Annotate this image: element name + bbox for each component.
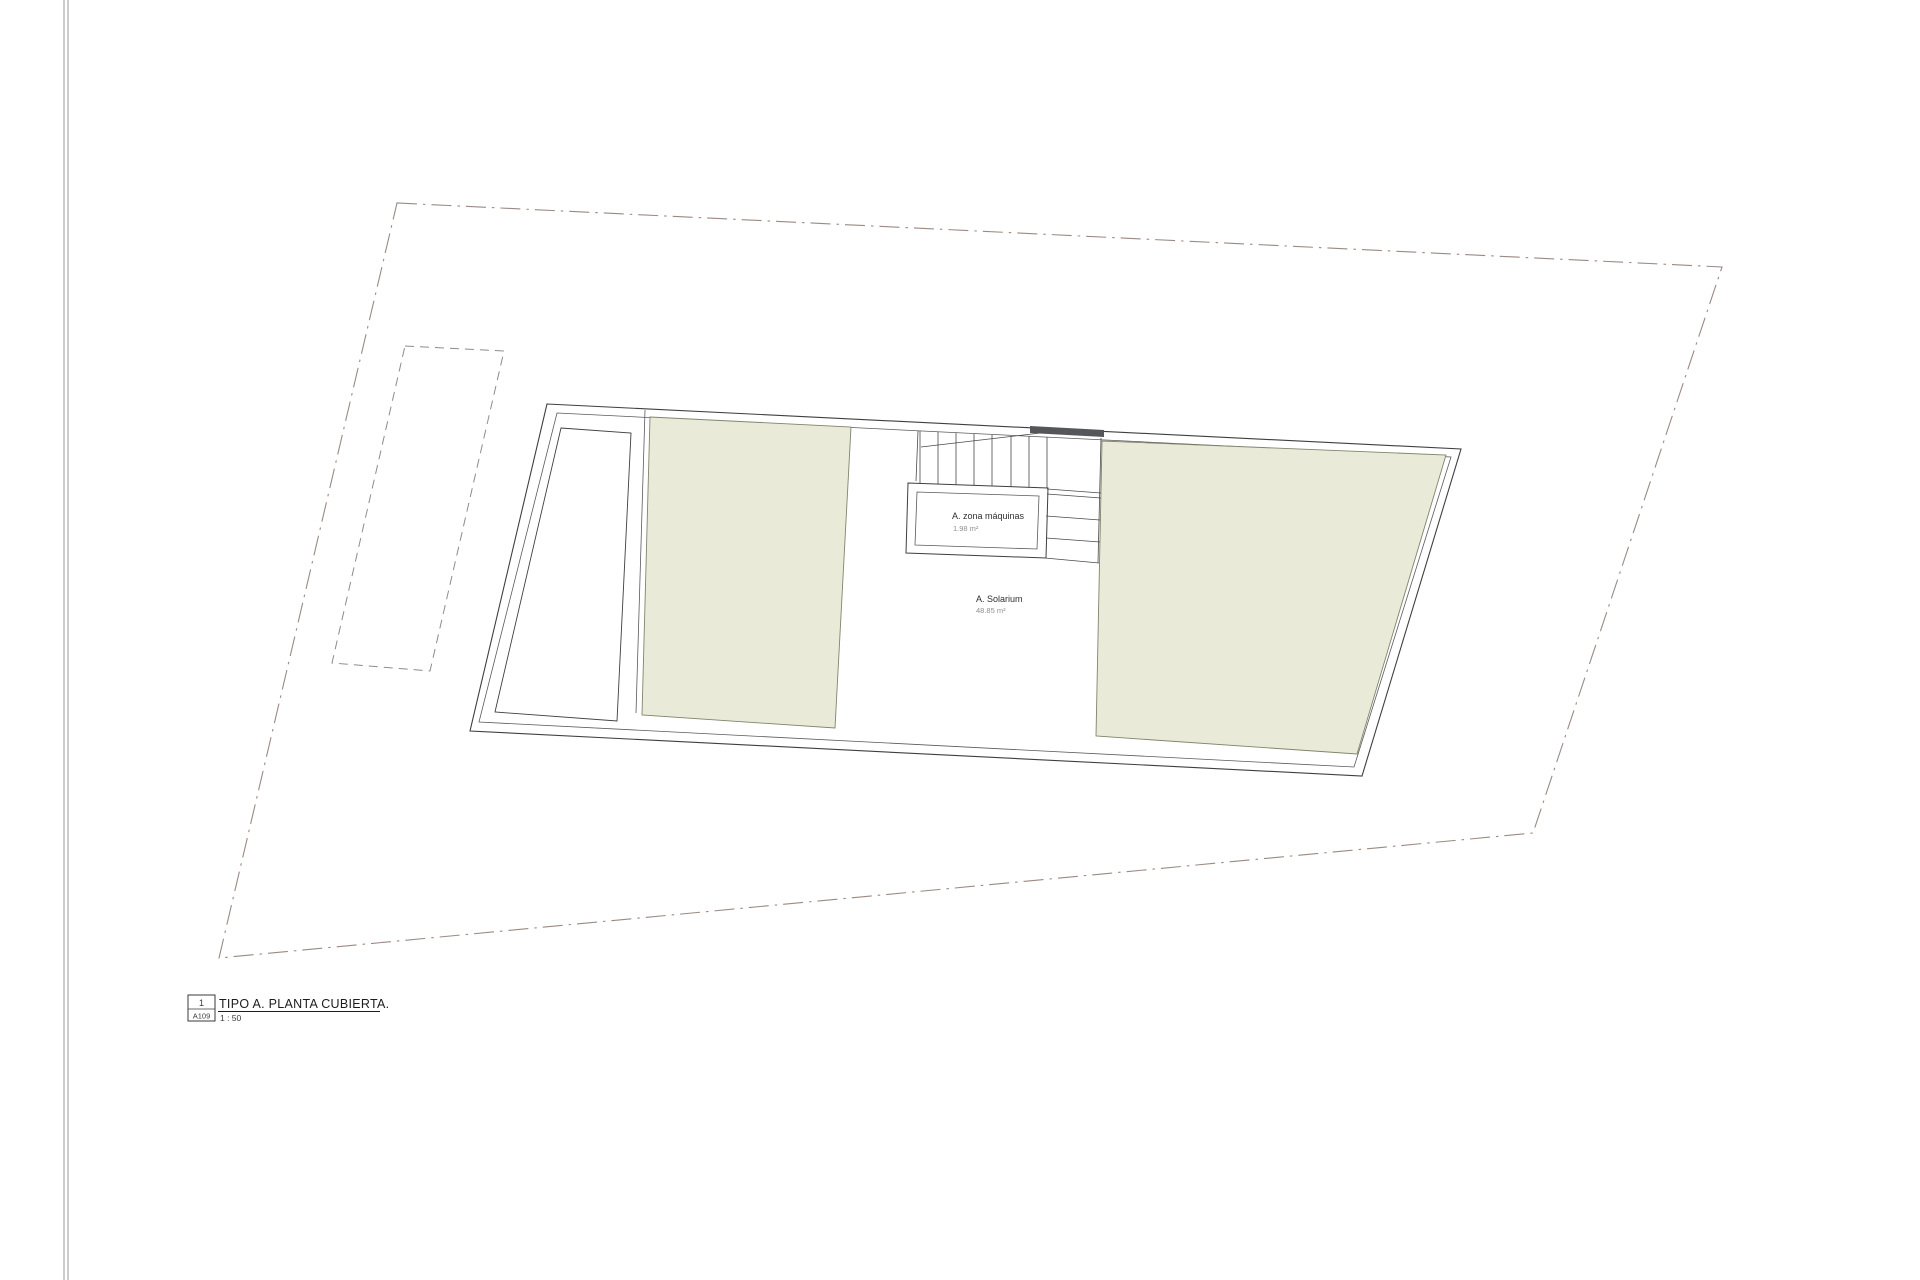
view-scale: 1 : 50 <box>220 1013 242 1023</box>
roof-terrace-east <box>1096 441 1446 754</box>
machine-room-area: 1.98 m² <box>953 524 979 533</box>
parking-dashed-outline <box>332 346 504 671</box>
drawing-sheet: A. zona máquinas 1.98 m² A. Solarium 48.… <box>0 0 1920 1280</box>
solarium-area: 48.85 m² <box>976 606 1006 615</box>
detail-number: 1 <box>199 998 204 1008</box>
view-title: TIPO A. PLANTA CUBIERTA. <box>219 997 389 1011</box>
machine-room-label: A. zona máquinas <box>952 511 1025 521</box>
sheet-number: A109 <box>193 1012 211 1021</box>
floor-plan-canvas: A. zona máquinas 1.98 m² A. Solarium 48.… <box>0 0 1920 1280</box>
title-block: 1 A109 TIPO A. PLANTA CUBIERTA. 1 : 50 <box>188 995 389 1023</box>
roof-terrace-west <box>642 417 851 728</box>
solarium-label: A. Solarium <box>976 594 1023 604</box>
